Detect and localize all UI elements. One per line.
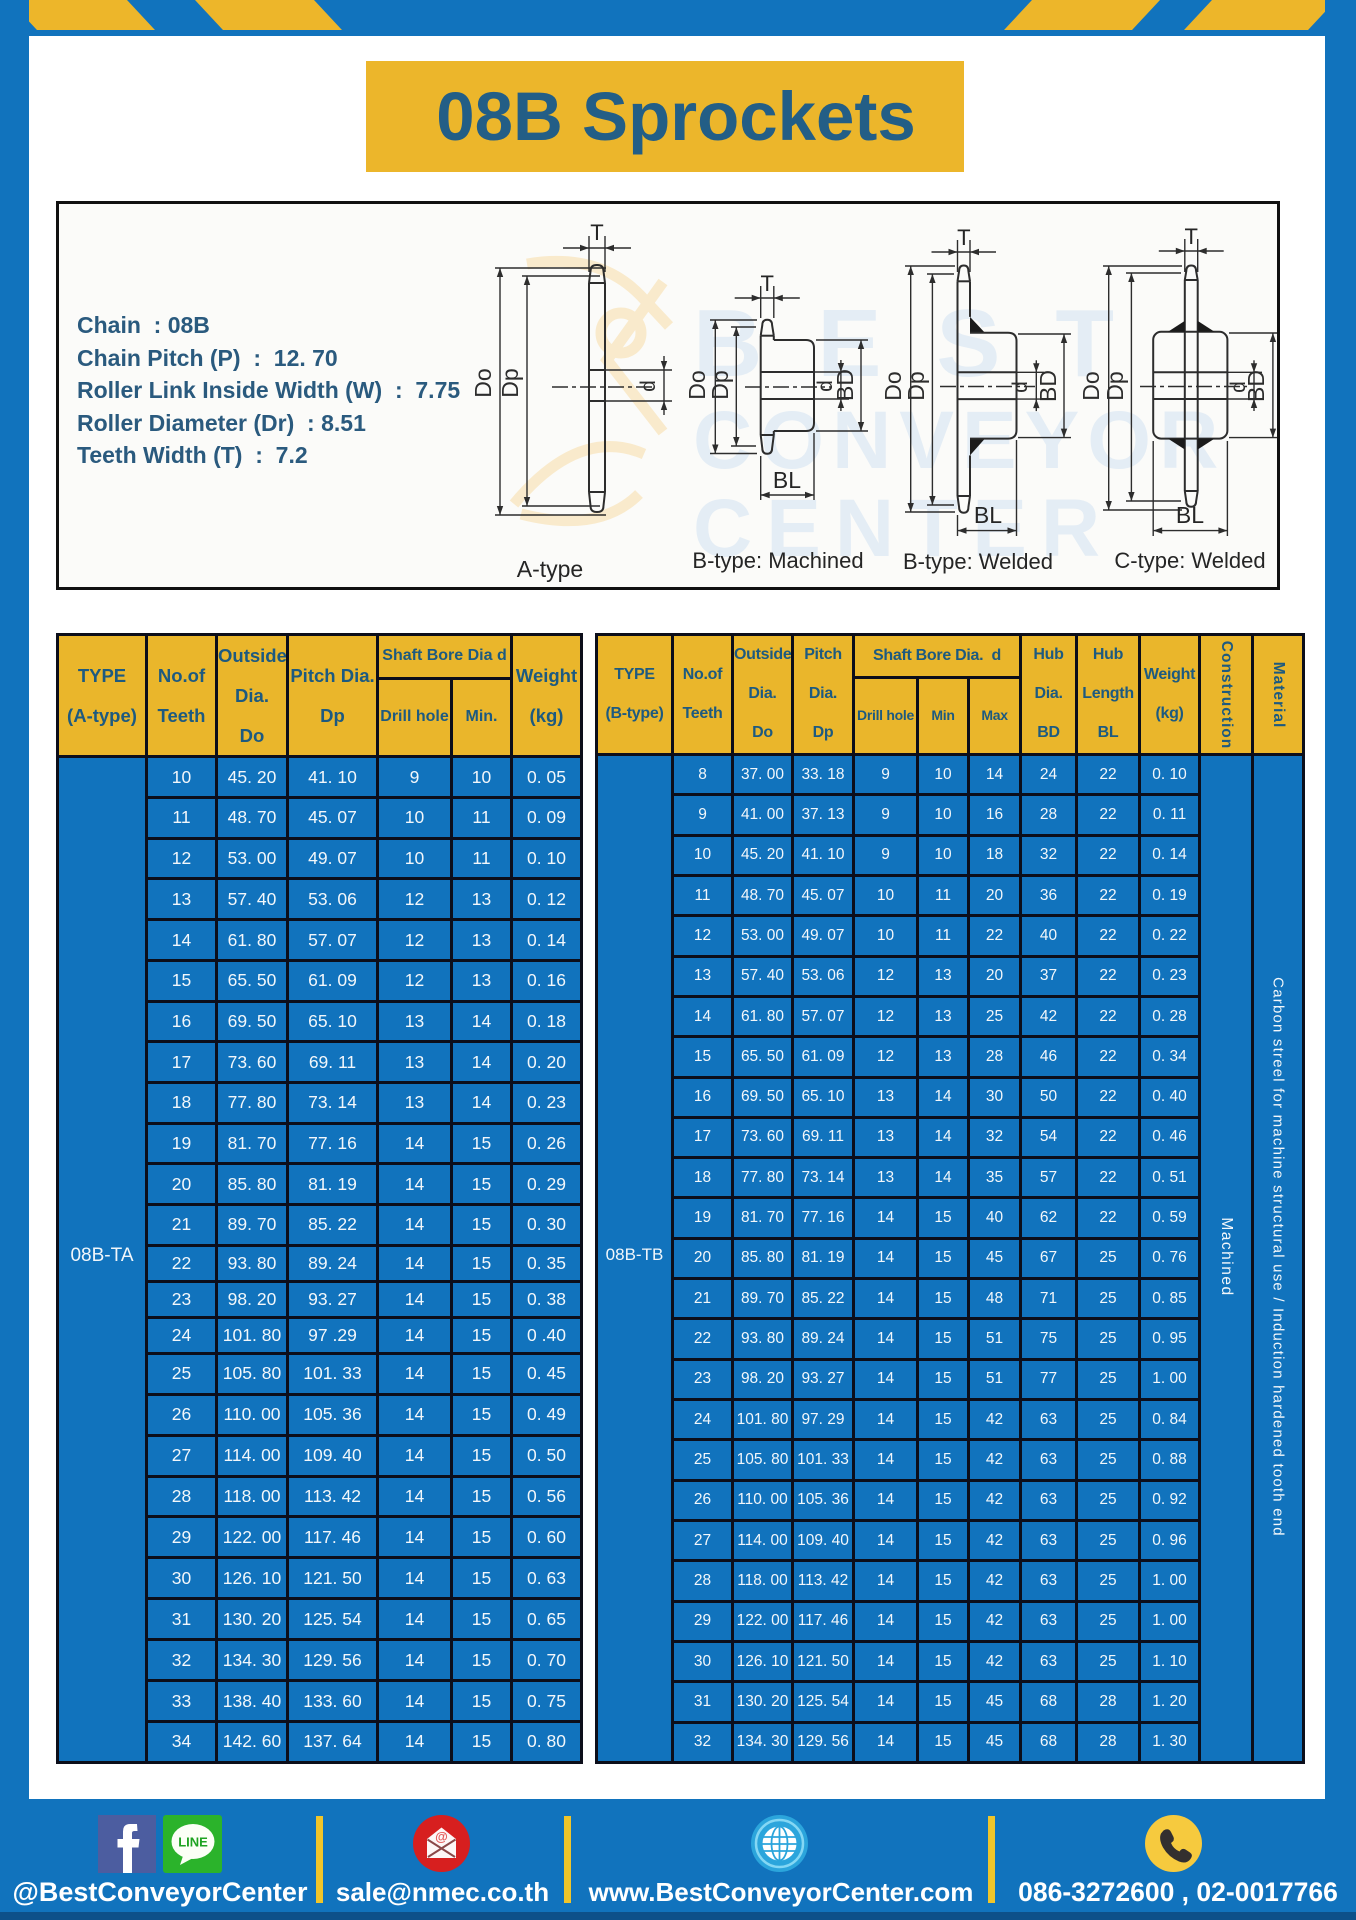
svg-text:C-type: Welded: C-type: Welded [1114, 548, 1265, 573]
svg-text:T: T [957, 225, 970, 250]
svg-text:d: d [637, 380, 660, 392]
svg-text:BD: BD [1035, 370, 1061, 402]
svg-text:BL: BL [974, 502, 1002, 528]
svg-text:Dp: Dp [707, 370, 733, 399]
svg-text:T: T [1184, 224, 1197, 249]
svg-text:T: T [590, 220, 603, 245]
svg-text:B-type: Welded: B-type: Welded [903, 549, 1053, 574]
svg-text:BL: BL [1176, 502, 1204, 528]
svg-text:Dp: Dp [903, 371, 929, 400]
svg-text:A-type: A-type [517, 556, 583, 582]
svg-text:Dp: Dp [497, 368, 523, 397]
svg-text:@: @ [435, 1829, 448, 1844]
svg-text:BD: BD [1243, 370, 1269, 402]
svg-text:B-type: Machined: B-type: Machined [692, 548, 863, 573]
svg-text:d: d [1009, 381, 1032, 393]
svg-text:BD: BD [832, 369, 858, 401]
svg-text:T: T [760, 271, 773, 296]
svg-text:LINE: LINE [178, 1835, 208, 1850]
svg-text:BL: BL [773, 467, 801, 493]
svg-text:Do: Do [470, 368, 496, 397]
svg-text:Do: Do [1078, 371, 1104, 400]
svg-text:Dp: Dp [1102, 371, 1128, 400]
